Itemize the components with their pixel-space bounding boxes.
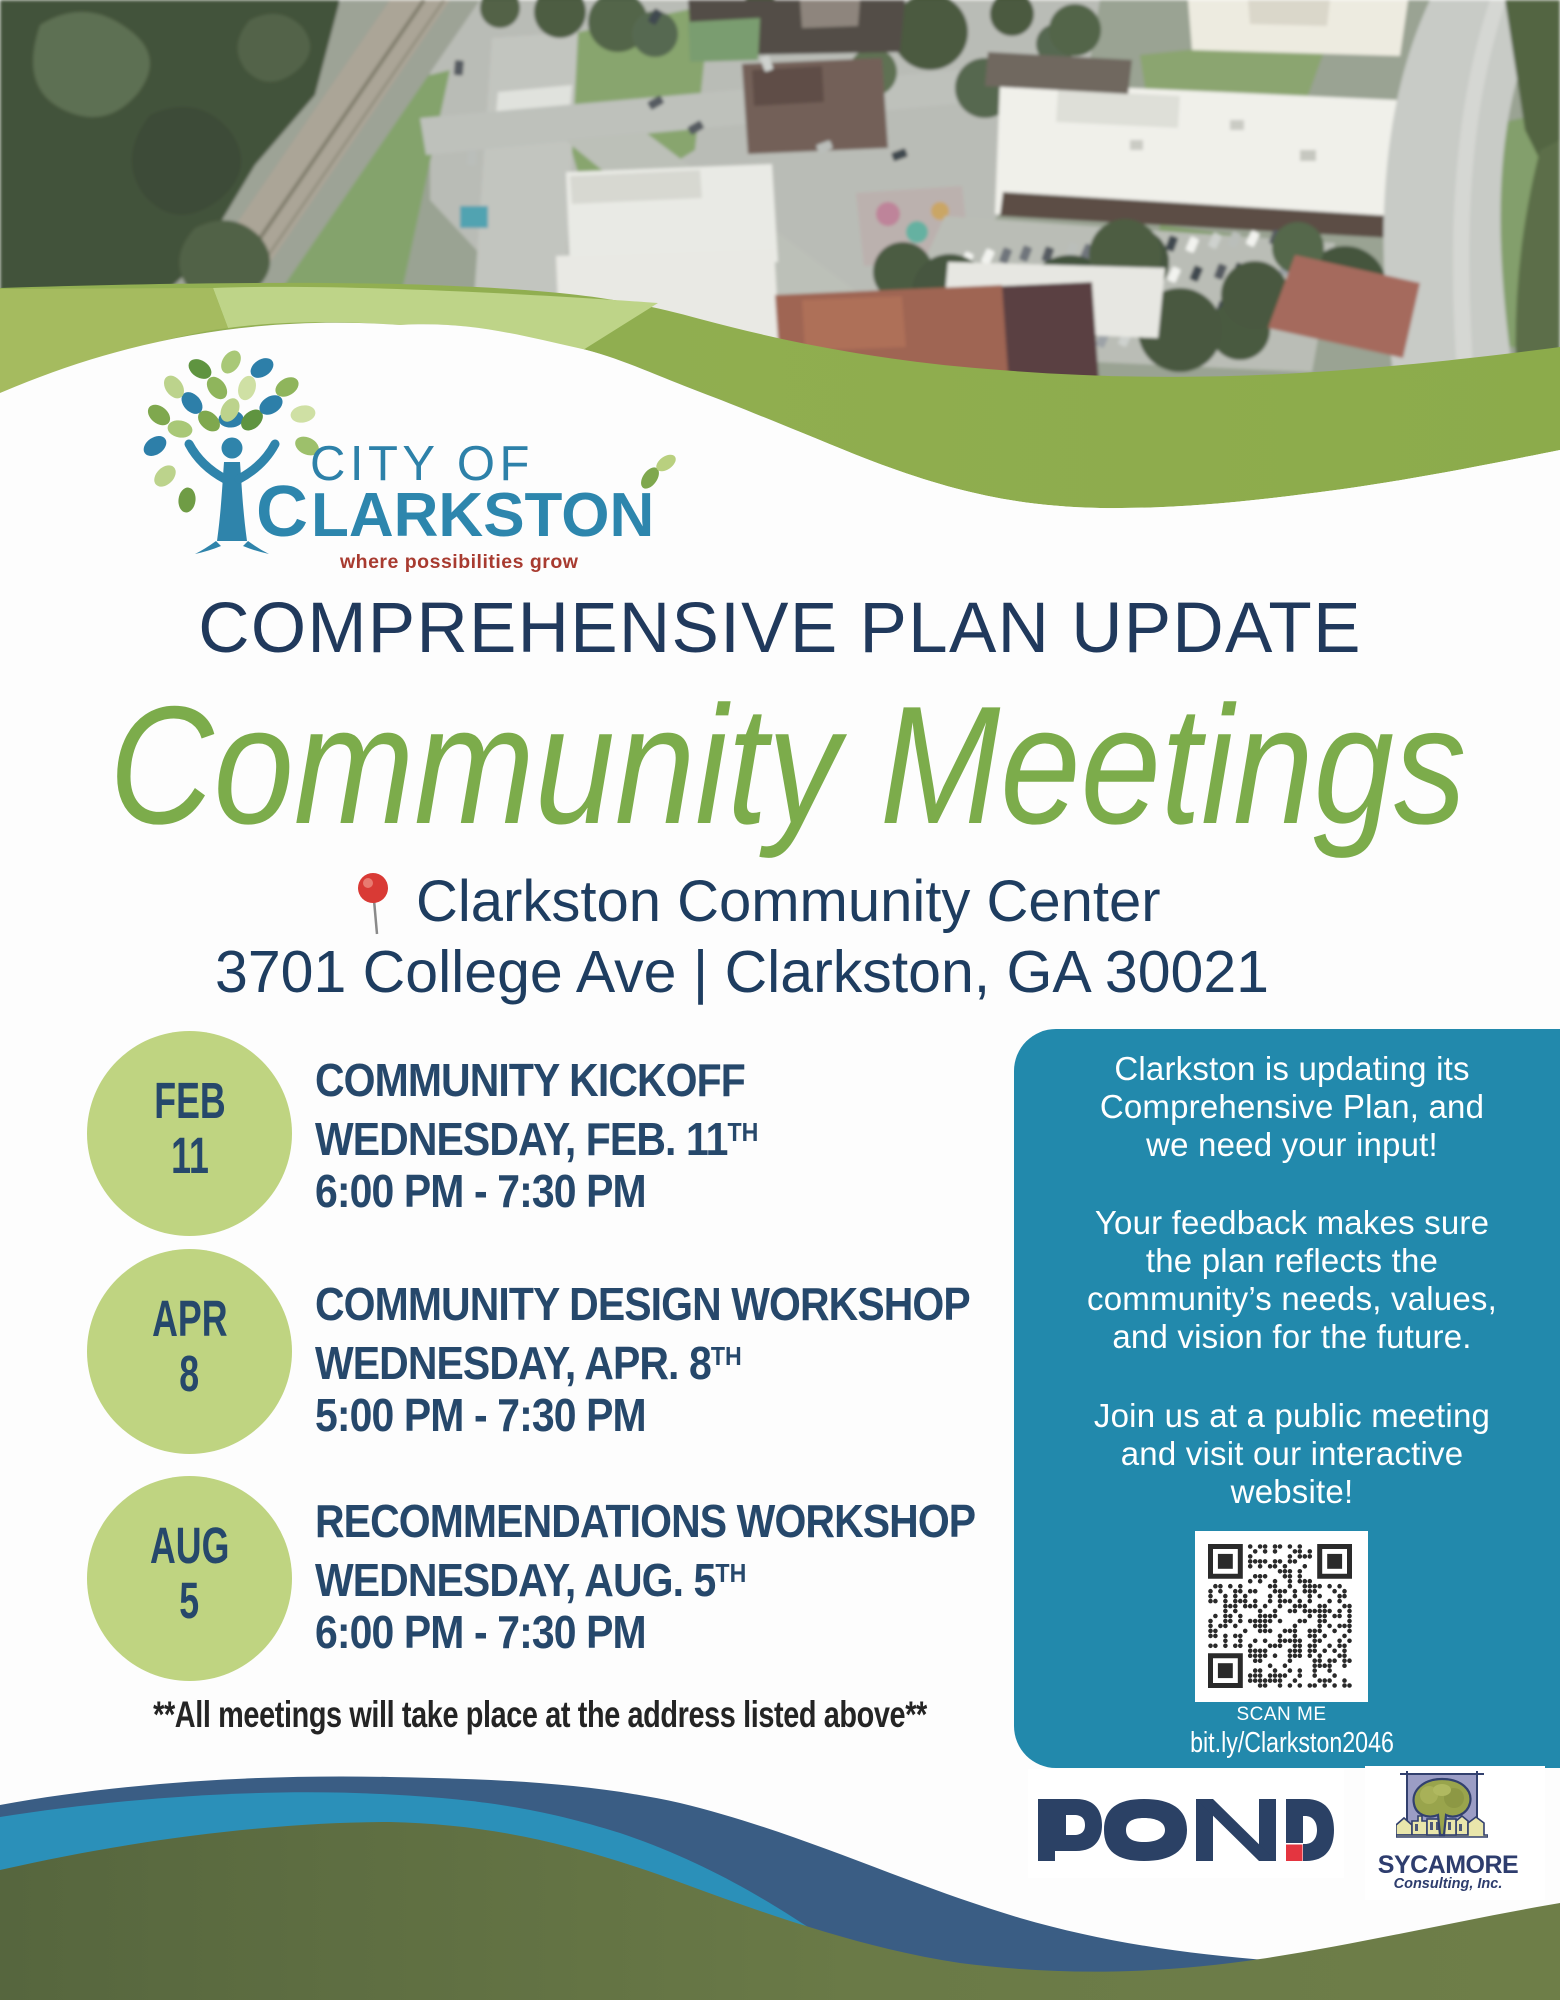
svg-text:where possibilities grow: where possibilities grow [339, 551, 579, 573]
svg-text:LARKSTON: LARKSTON [311, 481, 654, 550]
svg-text:C: C [256, 472, 308, 552]
